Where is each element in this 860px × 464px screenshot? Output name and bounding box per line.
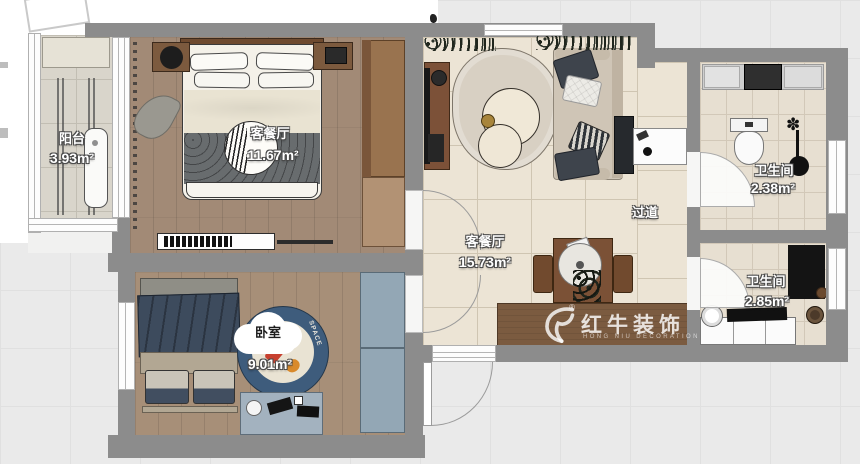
master-door-opening bbox=[405, 190, 423, 250]
curtain-icon bbox=[133, 42, 137, 234]
laptop-icon bbox=[297, 405, 320, 417]
faucet-bar bbox=[727, 307, 787, 322]
wardrobe-blue bbox=[360, 272, 405, 433]
pillow bbox=[194, 72, 250, 89]
vanity-sink bbox=[701, 305, 723, 327]
table-plant-icon bbox=[573, 270, 601, 302]
bath-upper-door-opening bbox=[687, 152, 700, 207]
plant-garland-icon bbox=[536, 36, 632, 50]
living-dining-label: 客餐厅 bbox=[455, 231, 515, 250]
watermark-brand-en: HONG NIU DECORATION bbox=[583, 334, 700, 340]
dining-chair bbox=[533, 255, 553, 293]
bedroom-label: 卧室 bbox=[250, 322, 286, 341]
low-cabinet bbox=[362, 177, 405, 247]
balcony-lower-ledge bbox=[28, 230, 118, 253]
pillow bbox=[145, 370, 189, 404]
bath-counter-seg bbox=[784, 66, 822, 88]
wall-bath-top bbox=[650, 48, 848, 62]
bed2-foot bbox=[142, 406, 238, 413]
pillow bbox=[258, 72, 314, 89]
bathroom-upper-label: 卫生间 bbox=[746, 160, 802, 179]
floor-plan-canvas: ✦ SPACE ✽ bbox=[0, 0, 860, 464]
wall-bath-divider bbox=[687, 230, 826, 243]
bed-sheet bbox=[186, 182, 318, 198]
master-bedroom-area: 11.67m² bbox=[238, 147, 308, 163]
lazy-susan-center bbox=[576, 261, 584, 269]
balcony-area: 3.93m² bbox=[40, 150, 104, 166]
registered-mark: ® bbox=[569, 303, 575, 312]
entry-threshold bbox=[432, 345, 496, 362]
stool-icon bbox=[806, 306, 824, 324]
dining-chair bbox=[613, 255, 633, 293]
washer-dryer bbox=[744, 64, 782, 90]
bedroom2-door-opening bbox=[405, 275, 423, 333]
master-bedroom-label: 客餐厅 bbox=[240, 123, 300, 142]
coffee-table-small bbox=[478, 124, 522, 168]
wardrobe-edge bbox=[362, 40, 371, 177]
balcony-sill-window bbox=[28, 218, 118, 232]
side-unit bbox=[614, 116, 634, 174]
media-box bbox=[428, 134, 444, 162]
living-dining-area: 15.73m² bbox=[450, 254, 520, 270]
desk-note bbox=[294, 396, 303, 405]
bathroom-lower-label: 卫生间 bbox=[738, 271, 794, 290]
wall-between-bedrooms bbox=[108, 253, 423, 272]
plant-garland-icon bbox=[424, 38, 496, 51]
bed2-blanket bbox=[137, 293, 241, 358]
toilet-button bbox=[745, 122, 753, 127]
balcony-cabinet bbox=[42, 37, 110, 68]
wall-bedroom2-bottom bbox=[108, 435, 425, 458]
desk-lamp-icon bbox=[246, 400, 262, 416]
tv-device bbox=[325, 47, 347, 64]
bath-upper-window bbox=[828, 140, 846, 214]
bathroom-lower-area: 2.85m² bbox=[736, 293, 798, 309]
pillow bbox=[193, 370, 235, 404]
soundbar bbox=[277, 240, 333, 244]
stool-icon bbox=[160, 46, 183, 69]
hallway-label: 过道 bbox=[622, 202, 668, 221]
pillow bbox=[190, 52, 249, 71]
balcony-bedroom-window bbox=[112, 37, 130, 218]
bath-counter-seg bbox=[704, 66, 740, 88]
bath-lower-window bbox=[828, 248, 846, 310]
pillow bbox=[256, 52, 315, 71]
plant-icon: ✽ bbox=[786, 116, 804, 134]
speaker-icon bbox=[431, 70, 447, 86]
wall-scribble bbox=[430, 14, 437, 23]
bedroom2-window bbox=[118, 302, 135, 390]
bedroom-area: 9.01m² bbox=[238, 356, 302, 372]
wall-top bbox=[85, 23, 655, 37]
kettle-icon bbox=[481, 114, 495, 128]
living-top-window bbox=[484, 24, 563, 36]
balcony-label: 阳台 bbox=[48, 128, 96, 147]
media-keys bbox=[162, 236, 232, 247]
bath-lower-door-opening bbox=[687, 257, 700, 310]
faucet-icon bbox=[643, 147, 652, 156]
balcony-glazing bbox=[28, 33, 41, 233]
exterior-mark bbox=[0, 62, 8, 68]
wardrobe-blue-divider bbox=[360, 347, 405, 349]
exterior-mark bbox=[0, 128, 8, 138]
bathroom-upper-area: 2.38m² bbox=[742, 180, 804, 196]
